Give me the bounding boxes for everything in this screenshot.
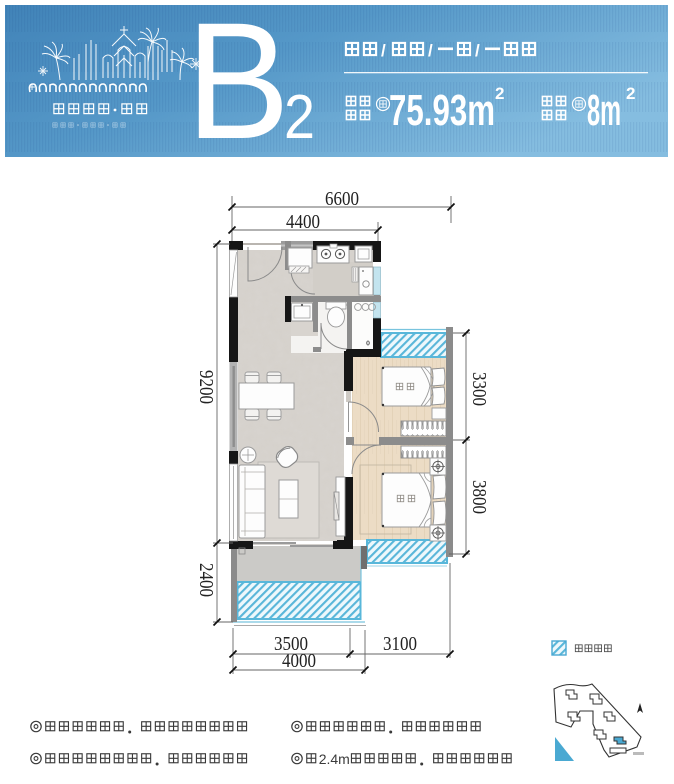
svg-text:/: / — [381, 41, 386, 60]
svg-text:8m: 8m — [587, 86, 621, 135]
svg-text:/: / — [428, 41, 433, 60]
svg-text:B: B — [186, 0, 290, 174]
svg-text:3800: 3800 — [468, 480, 490, 514]
svg-text:/: / — [475, 41, 480, 60]
svg-text:3100: 3100 — [383, 633, 417, 655]
svg-text:6600: 6600 — [325, 188, 359, 210]
svg-text:75.93m: 75.93m — [389, 86, 495, 135]
svg-text:2: 2 — [284, 83, 315, 152]
svg-text:9200: 9200 — [195, 370, 217, 404]
svg-text:2: 2 — [495, 84, 504, 103]
svg-text:3300: 3300 — [468, 372, 490, 406]
svg-text:2400: 2400 — [195, 563, 217, 597]
svg-text:2.4m: 2.4m — [319, 751, 350, 767]
svg-text:4400: 4400 — [286, 211, 320, 233]
svg-text:4000: 4000 — [282, 650, 316, 672]
svg-text:2: 2 — [626, 84, 635, 103]
